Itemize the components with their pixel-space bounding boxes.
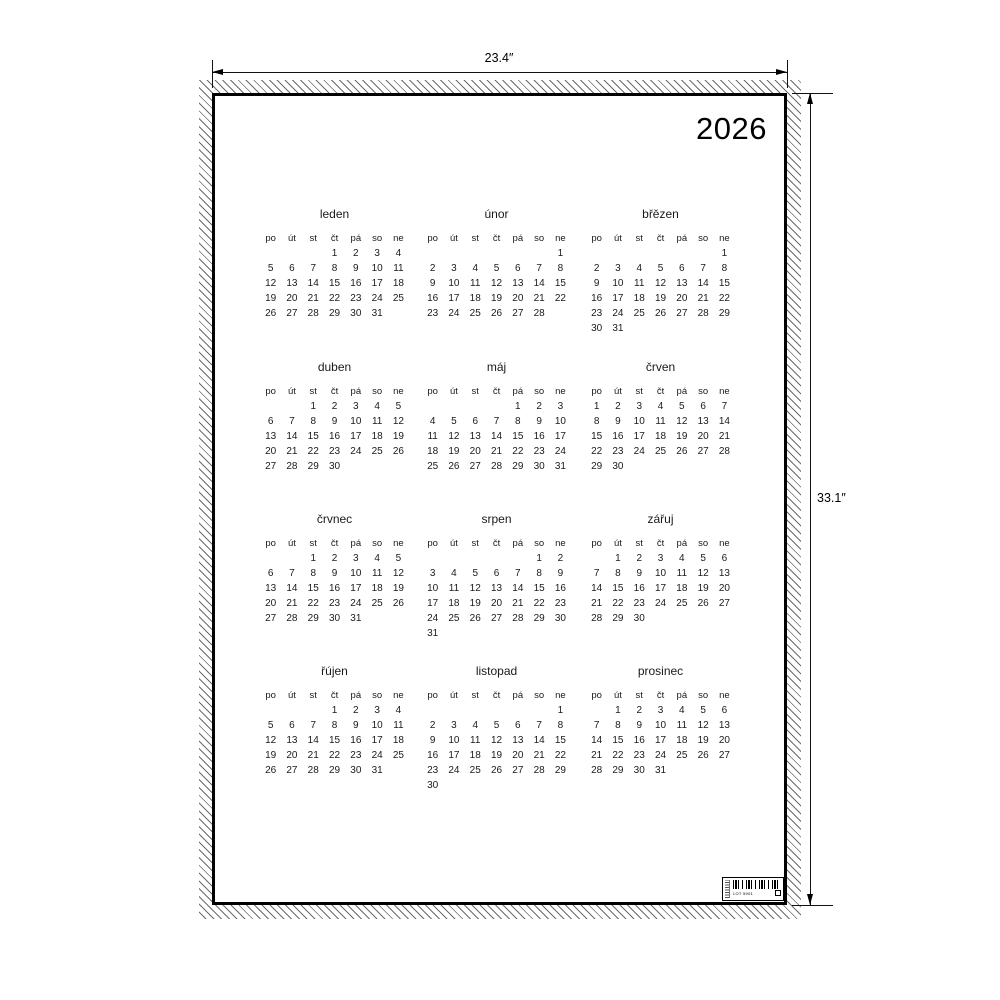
week-row: 2345678 bbox=[422, 718, 571, 733]
day-cell: 9 bbox=[324, 414, 345, 429]
day-cell: 4 bbox=[465, 718, 486, 733]
day-cell: 4 bbox=[465, 261, 486, 276]
day-cell: 19 bbox=[260, 748, 281, 763]
day-cell: 26 bbox=[388, 596, 409, 611]
height-dimension-line bbox=[810, 93, 811, 905]
day-cell: 13 bbox=[260, 429, 281, 444]
day-cell: 20 bbox=[260, 596, 281, 611]
day-cell: 28 bbox=[303, 763, 324, 778]
empty-cell bbox=[650, 611, 671, 626]
day-cell: 20 bbox=[260, 444, 281, 459]
week-row: 31 bbox=[422, 626, 571, 641]
empty-cell bbox=[671, 611, 692, 626]
day-cell: 25 bbox=[671, 748, 692, 763]
day-header: so bbox=[692, 536, 713, 551]
day-cell: 3 bbox=[422, 566, 443, 581]
day-cell: 20 bbox=[714, 581, 735, 596]
month-grid: poútstčtpásone12345678910111213141516171… bbox=[422, 536, 571, 641]
day-header: pá bbox=[507, 536, 528, 551]
day-cell: 29 bbox=[586, 459, 607, 474]
week-row: 262728293031 bbox=[260, 306, 409, 321]
day-cell: 27 bbox=[692, 444, 713, 459]
month-8: srpenpoútstčtpásone123456789101112131415… bbox=[422, 512, 572, 641]
day-cell: 19 bbox=[388, 429, 409, 444]
calendar-poster: 2026 ledenpoútstčtpásone1234567891011121… bbox=[212, 93, 787, 905]
day-cell: 13 bbox=[692, 414, 713, 429]
empty-cell bbox=[486, 551, 507, 566]
day-cell: 13 bbox=[465, 429, 486, 444]
day-cell: 25 bbox=[366, 596, 387, 611]
day-cell: 3 bbox=[366, 703, 387, 718]
empty-cell bbox=[528, 246, 549, 261]
day-cell: 7 bbox=[528, 261, 549, 276]
day-cell: 23 bbox=[324, 596, 345, 611]
day-cell: 27 bbox=[714, 596, 735, 611]
empty-cell bbox=[486, 703, 507, 718]
day-cell: 10 bbox=[366, 718, 387, 733]
day-header: čt bbox=[486, 231, 507, 246]
month-title: prosinec bbox=[586, 664, 735, 678]
day-cell: 6 bbox=[260, 566, 281, 581]
day-cell: 17 bbox=[345, 429, 366, 444]
empty-cell bbox=[692, 246, 713, 261]
day-cell: 25 bbox=[629, 306, 650, 321]
day-cell: 12 bbox=[388, 414, 409, 429]
day-cell: 26 bbox=[260, 763, 281, 778]
week-row: 1 bbox=[422, 703, 571, 718]
day-cell: 24 bbox=[366, 748, 387, 763]
day-cell: 30 bbox=[345, 306, 366, 321]
week-row: 13141516171819 bbox=[260, 429, 409, 444]
day-cell: 2 bbox=[422, 261, 443, 276]
day-cell: 12 bbox=[465, 581, 486, 596]
day-header: ne bbox=[388, 231, 409, 246]
week-row: 78910111213 bbox=[586, 718, 735, 733]
day-cell: 11 bbox=[671, 718, 692, 733]
month-grid: poútstčtpásone12345678910111213141516171… bbox=[422, 384, 571, 474]
day-cell: 17 bbox=[366, 733, 387, 748]
day-header: so bbox=[692, 688, 713, 703]
day-cell: 15 bbox=[528, 581, 549, 596]
day-cell: 16 bbox=[345, 276, 366, 291]
day-header: st bbox=[303, 231, 324, 246]
day-cell: 8 bbox=[324, 718, 345, 733]
empty-cell bbox=[443, 246, 464, 261]
week-row: 11121314151617 bbox=[422, 429, 571, 444]
day-cell: 12 bbox=[486, 733, 507, 748]
day-cell: 17 bbox=[629, 429, 650, 444]
width-dimension-label: 23.4″ bbox=[482, 51, 517, 65]
empty-cell bbox=[443, 399, 464, 414]
day-cell: 21 bbox=[281, 596, 302, 611]
day-cell: 14 bbox=[714, 414, 735, 429]
day-header: ne bbox=[388, 536, 409, 551]
day-cell: 22 bbox=[607, 748, 628, 763]
day-cell: 29 bbox=[607, 763, 628, 778]
day-header: čt bbox=[324, 536, 345, 551]
empty-cell bbox=[465, 551, 486, 566]
day-cell: 27 bbox=[260, 611, 281, 626]
month-title: srpen bbox=[422, 512, 571, 526]
day-cell: 27 bbox=[260, 459, 281, 474]
day-cell: 8 bbox=[714, 261, 735, 276]
week-row: 262728293031 bbox=[260, 763, 409, 778]
day-cell: 6 bbox=[281, 718, 302, 733]
empty-cell bbox=[366, 611, 387, 626]
day-cell: 16 bbox=[629, 581, 650, 596]
day-cell: 21 bbox=[281, 444, 302, 459]
day-cell: 24 bbox=[629, 444, 650, 459]
day-cell: 5 bbox=[692, 703, 713, 718]
week-row: 16171819202122 bbox=[422, 748, 571, 763]
week-row: 14151617181920 bbox=[586, 581, 735, 596]
day-cell: 14 bbox=[303, 733, 324, 748]
day-header: st bbox=[465, 536, 486, 551]
day-cell: 31 bbox=[607, 321, 628, 336]
day-cell: 24 bbox=[443, 306, 464, 321]
day-cell: 17 bbox=[366, 276, 387, 291]
day-cell: 13 bbox=[281, 733, 302, 748]
day-cell: 1 bbox=[303, 551, 324, 566]
day-cell: 16 bbox=[345, 733, 366, 748]
day-cell: 16 bbox=[607, 429, 628, 444]
day-cell: 10 bbox=[550, 414, 571, 429]
day-cell: 8 bbox=[550, 261, 571, 276]
barcode-icon bbox=[733, 880, 781, 889]
day-header: pá bbox=[671, 536, 692, 551]
day-cell: 10 bbox=[345, 566, 366, 581]
day-cell: 2 bbox=[345, 703, 366, 718]
day-cell: 5 bbox=[486, 261, 507, 276]
empty-cell bbox=[507, 626, 528, 641]
day-cell: 23 bbox=[550, 596, 571, 611]
day-cell: 28 bbox=[528, 763, 549, 778]
empty-cell bbox=[422, 703, 443, 718]
empty-cell bbox=[714, 321, 735, 336]
day-cell: 14 bbox=[486, 429, 507, 444]
day-cell: 21 bbox=[528, 291, 549, 306]
day-cell: 1 bbox=[507, 399, 528, 414]
day-cell: 30 bbox=[586, 321, 607, 336]
week-row: 14151617181920 bbox=[586, 733, 735, 748]
empty-cell bbox=[388, 459, 409, 474]
day-header: út bbox=[607, 384, 628, 399]
week-row: 123456 bbox=[586, 703, 735, 718]
week-row: 6789101112 bbox=[260, 566, 409, 581]
week-row: 2345678 bbox=[422, 261, 571, 276]
week-row: 12131415161718 bbox=[260, 276, 409, 291]
day-cell: 25 bbox=[671, 596, 692, 611]
day-cell: 26 bbox=[443, 459, 464, 474]
week-row: 12131415161718 bbox=[260, 733, 409, 748]
month-9: zářujpoútstčtpásone123456789101112131415… bbox=[586, 512, 736, 626]
day-cell: 19 bbox=[486, 748, 507, 763]
day-cell: 12 bbox=[650, 276, 671, 291]
month-grid: poútstčtpásone12345678910111213141516171… bbox=[260, 688, 409, 778]
day-cell: 9 bbox=[324, 566, 345, 581]
empty-cell bbox=[303, 703, 324, 718]
day-cell: 24 bbox=[607, 306, 628, 321]
empty-cell bbox=[550, 626, 571, 641]
month-title: únor bbox=[422, 207, 571, 221]
day-cell: 29 bbox=[714, 306, 735, 321]
day-cell: 9 bbox=[607, 414, 628, 429]
empty-cell bbox=[281, 551, 302, 566]
week-row: 6789101112 bbox=[260, 414, 409, 429]
day-cell: 12 bbox=[260, 733, 281, 748]
day-cell: 11 bbox=[366, 566, 387, 581]
day-cell: 25 bbox=[465, 306, 486, 321]
day-cell: 21 bbox=[486, 444, 507, 459]
day-cell: 15 bbox=[303, 581, 324, 596]
day-cell: 8 bbox=[303, 566, 324, 581]
week-row: 1234 bbox=[260, 246, 409, 261]
day-cell: 28 bbox=[507, 611, 528, 626]
week-row: 282930 bbox=[586, 611, 735, 626]
day-header: so bbox=[528, 536, 549, 551]
empty-cell bbox=[443, 551, 464, 566]
day-cell: 13 bbox=[671, 276, 692, 291]
day-cell: 18 bbox=[366, 581, 387, 596]
day-cell: 10 bbox=[650, 718, 671, 733]
day-cell: 7 bbox=[586, 566, 607, 581]
day-cell: 27 bbox=[281, 763, 302, 778]
day-cell: 30 bbox=[550, 611, 571, 626]
day-cell: 5 bbox=[692, 551, 713, 566]
empty-cell bbox=[507, 778, 528, 793]
month-grid: poútstčtpásone12345678910111213141516171… bbox=[422, 688, 571, 793]
day-cell: 11 bbox=[465, 276, 486, 291]
month-3: břězenpoútstčtpásone12345678910111213141… bbox=[586, 207, 736, 336]
lot-number-text: LOT 5901 bbox=[733, 891, 753, 896]
week-row: 9101112131415 bbox=[422, 733, 571, 748]
week-row: 232425262728 bbox=[422, 306, 571, 321]
day-cell: 11 bbox=[629, 276, 650, 291]
day-cell: 22 bbox=[586, 444, 607, 459]
day-cell: 22 bbox=[550, 291, 571, 306]
day-header: út bbox=[281, 536, 302, 551]
day-cell: 7 bbox=[692, 261, 713, 276]
week-row: 22232425262728 bbox=[586, 444, 735, 459]
day-cell: 9 bbox=[422, 276, 443, 291]
day-cell: 5 bbox=[443, 414, 464, 429]
week-row: 45678910 bbox=[422, 414, 571, 429]
empty-cell bbox=[388, 306, 409, 321]
day-cell: 15 bbox=[550, 733, 571, 748]
day-cell: 14 bbox=[586, 733, 607, 748]
empty-cell bbox=[671, 321, 692, 336]
day-header: po bbox=[586, 536, 607, 551]
day-cell: 31 bbox=[550, 459, 571, 474]
empty-cell bbox=[260, 703, 281, 718]
day-cell: 18 bbox=[671, 581, 692, 596]
day-cell: 5 bbox=[650, 261, 671, 276]
week-row: 12 bbox=[422, 551, 571, 566]
day-cell: 26 bbox=[650, 306, 671, 321]
day-cell: 18 bbox=[422, 444, 443, 459]
week-row: 1 bbox=[422, 246, 571, 261]
month-1: ledenpoútstčtpásone123456789101112131415… bbox=[260, 207, 410, 321]
day-cell: 18 bbox=[671, 733, 692, 748]
day-cell: 31 bbox=[345, 611, 366, 626]
empty-cell bbox=[714, 763, 735, 778]
day-cell: 17 bbox=[345, 581, 366, 596]
day-cell: 16 bbox=[528, 429, 549, 444]
day-header: út bbox=[281, 688, 302, 703]
day-header: st bbox=[465, 231, 486, 246]
empty-cell bbox=[528, 778, 549, 793]
day-cell: 26 bbox=[486, 306, 507, 321]
day-cell: 21 bbox=[714, 429, 735, 444]
day-cell: 29 bbox=[324, 306, 345, 321]
day-cell: 25 bbox=[650, 444, 671, 459]
day-cell: 22 bbox=[714, 291, 735, 306]
day-header: st bbox=[303, 688, 324, 703]
day-cell: 16 bbox=[586, 291, 607, 306]
day-header: st bbox=[465, 688, 486, 703]
day-header: pá bbox=[345, 384, 366, 399]
empty-cell bbox=[671, 763, 692, 778]
day-cell: 30 bbox=[629, 763, 650, 778]
day-cell: 3 bbox=[550, 399, 571, 414]
day-cell: 5 bbox=[260, 718, 281, 733]
day-cell: 27 bbox=[465, 459, 486, 474]
day-cell: 1 bbox=[714, 246, 735, 261]
day-cell: 10 bbox=[607, 276, 628, 291]
day-cell: 29 bbox=[550, 763, 571, 778]
empty-cell bbox=[586, 551, 607, 566]
day-header: čt bbox=[650, 688, 671, 703]
month-title: máj bbox=[422, 360, 571, 374]
day-cell: 6 bbox=[465, 414, 486, 429]
month-5: májpoútstčtpásone12345678910111213141516… bbox=[422, 360, 572, 474]
day-cell: 4 bbox=[443, 566, 464, 581]
day-cell: 4 bbox=[671, 703, 692, 718]
day-cell: 7 bbox=[486, 414, 507, 429]
day-cell: 26 bbox=[260, 306, 281, 321]
day-cell: 31 bbox=[650, 763, 671, 778]
day-cell: 1 bbox=[324, 703, 345, 718]
day-cell: 11 bbox=[671, 566, 692, 581]
week-row: 78910111213 bbox=[586, 566, 735, 581]
day-cell: 1 bbox=[324, 246, 345, 261]
week-row: 2930 bbox=[586, 459, 735, 474]
empty-cell bbox=[486, 626, 507, 641]
week-row: 28293031 bbox=[586, 763, 735, 778]
day-cell: 29 bbox=[528, 611, 549, 626]
day-cell: 9 bbox=[422, 733, 443, 748]
month-12: prosinecpoútstčtpásone123456789101112131… bbox=[586, 664, 736, 778]
day-cell: 5 bbox=[260, 261, 281, 276]
day-header: po bbox=[260, 384, 281, 399]
empty-cell bbox=[303, 246, 324, 261]
day-cell: 7 bbox=[281, 566, 302, 581]
day-header: út bbox=[443, 384, 464, 399]
day-cell: 12 bbox=[486, 276, 507, 291]
month-title: listopad bbox=[422, 664, 571, 678]
day-cell: 2 bbox=[586, 261, 607, 276]
empty-cell bbox=[692, 459, 713, 474]
day-cell: 2 bbox=[607, 399, 628, 414]
week-row: 19202122232425 bbox=[260, 748, 409, 763]
month-grid: poútstčtpásone12345678910111213141516171… bbox=[422, 231, 571, 321]
week-row: 9101112131415 bbox=[586, 276, 735, 291]
day-header: čt bbox=[324, 688, 345, 703]
empty-cell bbox=[629, 321, 650, 336]
day-cell: 25 bbox=[388, 291, 409, 306]
day-cell: 20 bbox=[281, 748, 302, 763]
week-row: 2345678 bbox=[586, 261, 735, 276]
day-cell: 22 bbox=[303, 596, 324, 611]
day-cell: 30 bbox=[629, 611, 650, 626]
empty-cell bbox=[388, 611, 409, 626]
day-cell: 31 bbox=[366, 763, 387, 778]
day-cell: 6 bbox=[281, 261, 302, 276]
empty-cell bbox=[629, 246, 650, 261]
month-grid: poútstčtpásone12345678910111213141516171… bbox=[586, 384, 735, 474]
day-header: st bbox=[303, 536, 324, 551]
day-cell: 10 bbox=[443, 276, 464, 291]
label-vertical-microtext bbox=[725, 880, 730, 898]
day-cell: 24 bbox=[443, 763, 464, 778]
day-cell: 21 bbox=[303, 748, 324, 763]
day-header: ne bbox=[550, 536, 571, 551]
empty-cell bbox=[486, 399, 507, 414]
day-header: čt bbox=[324, 231, 345, 246]
day-cell: 22 bbox=[607, 596, 628, 611]
week-row: 23242526272829 bbox=[422, 763, 571, 778]
day-cell: 22 bbox=[324, 748, 345, 763]
day-header: pá bbox=[671, 688, 692, 703]
width-dimension-line bbox=[212, 72, 787, 73]
day-cell: 18 bbox=[629, 291, 650, 306]
week-row: 12345 bbox=[260, 551, 409, 566]
empty-cell bbox=[366, 459, 387, 474]
day-cell: 18 bbox=[443, 596, 464, 611]
day-cell: 2 bbox=[528, 399, 549, 414]
day-cell: 15 bbox=[324, 733, 345, 748]
week-row: 1234 bbox=[260, 703, 409, 718]
day-cell: 18 bbox=[465, 291, 486, 306]
empty-cell bbox=[550, 778, 571, 793]
day-cell: 5 bbox=[671, 399, 692, 414]
day-cell: 5 bbox=[486, 718, 507, 733]
day-cell: 29 bbox=[507, 459, 528, 474]
day-cell: 18 bbox=[388, 276, 409, 291]
day-cell: 15 bbox=[607, 733, 628, 748]
day-cell: 17 bbox=[550, 429, 571, 444]
day-cell: 23 bbox=[422, 306, 443, 321]
day-header: čt bbox=[486, 688, 507, 703]
day-cell: 19 bbox=[671, 429, 692, 444]
day-cell: 1 bbox=[528, 551, 549, 566]
week-row: 123456 bbox=[586, 551, 735, 566]
day-cell: 17 bbox=[443, 748, 464, 763]
day-cell: 15 bbox=[607, 581, 628, 596]
day-cell: 20 bbox=[671, 291, 692, 306]
week-row: 13141516171819 bbox=[260, 581, 409, 596]
empty-cell bbox=[443, 703, 464, 718]
day-cell: 12 bbox=[692, 566, 713, 581]
day-cell: 21 bbox=[586, 748, 607, 763]
day-cell: 13 bbox=[714, 718, 735, 733]
day-cell: 23 bbox=[324, 444, 345, 459]
day-cell: 9 bbox=[629, 718, 650, 733]
empty-cell bbox=[586, 246, 607, 261]
empty-cell bbox=[507, 551, 528, 566]
height-dimension-label: 33.1″ bbox=[814, 491, 849, 505]
day-cell: 25 bbox=[443, 611, 464, 626]
